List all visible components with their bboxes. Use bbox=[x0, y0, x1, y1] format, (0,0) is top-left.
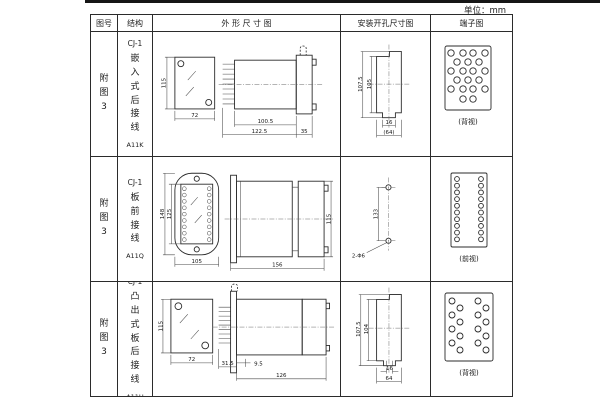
cell-structure-row3: CJ-1 凸出式板后接线 A11H bbox=[118, 282, 153, 396]
terminal-caption-row1: (背视) bbox=[458, 117, 478, 126]
dimension-table: 图号 结构 外 形 尺 寸 图 安装开孔尺寸图 端子图 附图3 CJ-1 嵌入式… bbox=[90, 14, 513, 397]
dim-label-outer-h: 107.5 bbox=[356, 321, 362, 337]
model-row1: CJ-1 bbox=[128, 39, 143, 48]
cell-mounting-row3: 107.5 104 16 64 bbox=[341, 282, 431, 396]
terminal-caption-row3: (背视) bbox=[459, 368, 479, 377]
dim-label-overall-w: (64) bbox=[383, 130, 394, 136]
code-row2: A11Q bbox=[126, 252, 144, 260]
cell-outline-row2: 148 125 105 156 115 bbox=[153, 157, 341, 282]
terminal-diagram-a11k: (背视) bbox=[431, 32, 512, 157]
model-row2: CJ-1 bbox=[128, 178, 143, 187]
fig-no-row2: 附图3 bbox=[98, 198, 110, 240]
code-row1: A11K bbox=[127, 141, 144, 149]
outline-drawing-a11h: 115 72 31.5 9.5 126 bbox=[153, 282, 340, 396]
dim-label-outer-h: 107.5 bbox=[358, 76, 364, 92]
page-top-rule bbox=[85, 0, 600, 3]
dim-label-flange: 35 bbox=[301, 128, 308, 134]
header-structure: 结构 bbox=[118, 15, 153, 32]
dim-label-depth: 100.5 bbox=[258, 118, 274, 124]
header-mounting: 安装开孔尺寸图 bbox=[341, 15, 431, 32]
structure-type-row3: 凸出式板后接线 bbox=[129, 291, 141, 389]
terminal-diagram-a11q: (前视) bbox=[431, 157, 512, 282]
dim-label-height: 115 bbox=[161, 77, 167, 87]
dim-label-height: 115 bbox=[327, 213, 333, 223]
header-outline: 外 形 尺 寸 图 bbox=[153, 15, 341, 32]
cell-fig-no-row1: 附图3 bbox=[91, 32, 118, 157]
front-view bbox=[165, 57, 215, 121]
dim-label-overall-w: 64 bbox=[386, 376, 393, 382]
code-row3: A11H bbox=[126, 393, 144, 396]
cell-mounting-row2: 133 2-Φ6 bbox=[341, 157, 431, 282]
dim-label-inner-h: 105 bbox=[367, 78, 373, 88]
terminal-caption-row2: (前视) bbox=[459, 254, 479, 263]
fig-no-row1: 附图3 bbox=[98, 73, 110, 115]
front-view bbox=[161, 299, 213, 365]
header-fig-no: 图号 bbox=[91, 15, 118, 32]
cell-terminal-row1: (背视) bbox=[431, 32, 512, 157]
dim-label-width: 105 bbox=[192, 258, 202, 264]
dim-label-width: 72 bbox=[188, 356, 195, 362]
model-row3: CJ-1 bbox=[128, 282, 143, 286]
terminal-pins bbox=[455, 176, 484, 241]
structure-type-row2: 板前接线 bbox=[129, 192, 141, 248]
dim-label-inner-h: 125 bbox=[167, 208, 173, 218]
dim-label-depth: 156 bbox=[272, 262, 283, 268]
mounting-drawing-a11k: 107.5 105 16 (64) bbox=[341, 32, 430, 157]
dim-label-offset: 9.5 bbox=[254, 361, 263, 367]
cell-outline-row1: 115 72 100.5 122.5 35 bbox=[153, 32, 341, 157]
outline-drawing-a11q: 148 125 105 156 115 bbox=[153, 157, 340, 282]
dim-label-depth-total: 122.5 bbox=[252, 128, 268, 134]
structure-type-row1: 嵌入式后接线 bbox=[129, 53, 141, 137]
dim-label-slot-w: 16 bbox=[386, 120, 393, 126]
cell-outline-row3: 115 72 31.5 9.5 126 bbox=[153, 282, 341, 396]
mounting-drawing-a11q: 133 2-Φ6 bbox=[341, 157, 430, 282]
cell-fig-no-row2: 附图3 bbox=[91, 157, 118, 282]
cell-structure-row1: CJ-1 嵌入式后接线 A11K bbox=[118, 32, 153, 157]
dim-label-inner-h: 104 bbox=[364, 323, 370, 334]
mounting-drawing-a11h: 107.5 104 16 64 bbox=[341, 282, 430, 396]
header-terminal: 端子图 bbox=[431, 15, 512, 32]
outline-drawing-a11k: 115 72 100.5 122.5 35 bbox=[153, 32, 340, 157]
fig-no-row3: 附图3 bbox=[98, 318, 110, 360]
hole-size-label: 2-Φ6 bbox=[352, 253, 366, 259]
cell-terminal-row2: (前视) bbox=[431, 157, 512, 282]
dim-label-tail: 31.5 bbox=[222, 360, 234, 366]
dim-label-slot-w: 16 bbox=[386, 366, 393, 372]
terminal-pins bbox=[448, 49, 488, 101]
cell-terminal-row3: (背视) bbox=[431, 282, 512, 396]
cell-structure-row2: CJ-1 板前接线 A11Q bbox=[118, 157, 153, 282]
terminal-pins bbox=[449, 298, 489, 353]
cell-mounting-row1: 107.5 105 16 (64) bbox=[341, 32, 431, 157]
dim-label-hole-span: 133 bbox=[374, 208, 380, 219]
dim-label-height: 115 bbox=[158, 320, 164, 330]
side-view bbox=[225, 175, 333, 270]
dim-label-depth: 126 bbox=[276, 372, 287, 378]
cell-fig-no-row3: 附图3 bbox=[91, 282, 118, 396]
dim-label-outer-h: 148 bbox=[160, 208, 166, 219]
terminal-diagram-a11h: (背视) bbox=[431, 282, 512, 396]
dim-label-width: 72 bbox=[191, 112, 198, 118]
